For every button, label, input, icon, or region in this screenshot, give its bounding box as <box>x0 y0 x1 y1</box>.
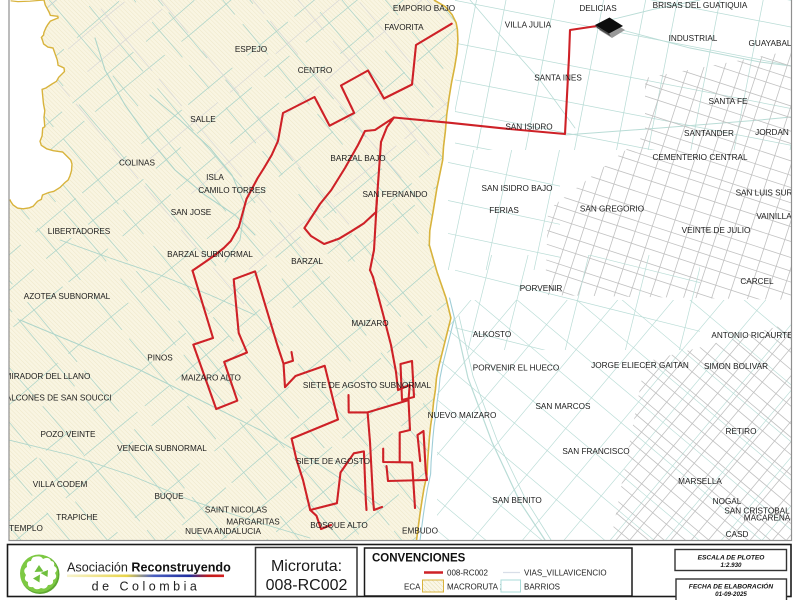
svg-text:01-09-2025: 01-09-2025 <box>715 591 747 598</box>
svg-text:INDUSTRIAL: INDUSTRIAL <box>669 34 718 43</box>
svg-text:RETIRO: RETIRO <box>726 427 757 436</box>
svg-text:PORVENIR: PORVENIR <box>520 284 563 293</box>
svg-text:ESCALA DE PLOTEO: ESCALA DE PLOTEO <box>698 555 766 562</box>
svg-text:008-RC002: 008-RC002 <box>447 569 488 578</box>
svg-text:CEMENTERIO CENTRAL: CEMENTERIO CENTRAL <box>652 153 748 162</box>
svg-text:MARSELLA: MARSELLA <box>678 477 722 486</box>
svg-text:AZOTEA SUBNORMAL: AZOTEA SUBNORMAL <box>24 292 111 301</box>
svg-text:PORVENIR EL HUECO: PORVENIR EL HUECO <box>473 364 559 373</box>
svg-text:CARCEL: CARCEL <box>740 277 774 286</box>
svg-text:BARZAL SUBNORMAL: BARZAL SUBNORMAL <box>167 250 253 259</box>
svg-text:VILLA JULIA: VILLA JULIA <box>505 21 552 30</box>
svg-text:ISLA: ISLA <box>206 173 224 182</box>
svg-text:MAIZARO: MAIZARO <box>351 319 388 328</box>
svg-text:Microruta:: Microruta: <box>271 558 342 575</box>
svg-text:BOSQUE ALTO: BOSQUE ALTO <box>310 521 367 530</box>
svg-text:MARGARITAS: MARGARITAS <box>226 518 280 527</box>
svg-text:BUQUE: BUQUE <box>154 492 184 501</box>
svg-text:TEMPLO: TEMPLO <box>9 524 43 533</box>
svg-text:BARZAL: BARZAL <box>291 257 323 266</box>
svg-text:FAVORITA: FAVORITA <box>384 23 424 32</box>
svg-text:SIMON BOLIVAR: SIMON BOLIVAR <box>704 362 768 371</box>
svg-text:FECHA DE ELABORACIÓN: FECHA DE ELABORACIÓN <box>689 582 774 591</box>
svg-text:LIBERTADORES: LIBERTADORES <box>48 227 111 236</box>
svg-text:BARRIOS: BARRIOS <box>524 583 560 592</box>
svg-text:JORDAN: JORDAN <box>755 128 789 137</box>
svg-text:SAN JOSE: SAN JOSE <box>171 208 212 217</box>
svg-text:BRISAS DEL GUATIQUIA: BRISAS DEL GUATIQUIA <box>653 1 748 10</box>
svg-text:NOGAL: NOGAL <box>713 497 742 506</box>
svg-text:VEINTE DE JULIO: VEINTE DE JULIO <box>682 226 751 235</box>
svg-text:SANTA FE: SANTA FE <box>709 97 749 106</box>
svg-text:MACARENA: MACARENA <box>744 514 791 523</box>
svg-text:VENECIA SUBNORMAL: VENECIA SUBNORMAL <box>117 444 207 453</box>
svg-text:CAMILO TORRES: CAMILO TORRES <box>198 186 266 195</box>
svg-text:EMBUDO: EMBUDO <box>402 527 438 536</box>
svg-text:ALKOSTO: ALKOSTO <box>473 330 512 339</box>
svg-text:NUEVO MAIZARO: NUEVO MAIZARO <box>428 411 497 420</box>
svg-text:SAN MARCOS: SAN MARCOS <box>535 402 591 411</box>
svg-text:BARZAL BAJO: BARZAL BAJO <box>330 154 385 163</box>
svg-text:JORGE ELIECER GAITAN: JORGE ELIECER GAITAN <box>591 361 689 370</box>
svg-text:MACRORUTA 2: MACRORUTA 2 <box>447 583 505 592</box>
svg-text:EMPORIO BAJO: EMPORIO BAJO <box>393 4 455 13</box>
svg-text:SAN FRANCISCO: SAN FRANCISCO <box>562 447 629 456</box>
svg-text:SAN ISIDRO BAJO: SAN ISIDRO BAJO <box>482 184 553 193</box>
svg-text:SAN GREGORIO: SAN GREGORIO <box>580 205 644 214</box>
svg-text:TRAPICHE: TRAPICHE <box>56 513 98 522</box>
svg-text:SAN LUIS SUR: SAN LUIS SUR <box>736 189 793 198</box>
svg-text:SANTA INES: SANTA INES <box>534 74 582 83</box>
svg-text:CONVENCIONES: CONVENCIONES <box>372 553 466 565</box>
svg-text:CENTRO: CENTRO <box>298 66 333 75</box>
svg-text:de Colombia: de Colombia <box>92 580 201 594</box>
svg-text:VAINILLA: VAINILLA <box>756 212 792 221</box>
svg-text:MIRADOR DEL LLANO: MIRADOR DEL LLANO <box>5 372 91 381</box>
svg-text:BALCONES DE SAN SOUCCI: BALCONES DE SAN SOUCCI <box>0 394 111 403</box>
svg-text:SAN BENITO: SAN BENITO <box>492 496 541 505</box>
svg-text:SALLE: SALLE <box>190 115 216 124</box>
svg-text:DELICIAS: DELICIAS <box>579 4 617 13</box>
svg-text:SAN ISIDRO: SAN ISIDRO <box>505 123 552 132</box>
svg-text:MAIZARO ALTO: MAIZARO ALTO <box>181 374 241 383</box>
svg-text:SAN FERNANDO: SAN FERNANDO <box>362 190 427 199</box>
svg-text:ANTONIO RICAURTE: ANTONIO RICAURTE <box>711 331 793 340</box>
svg-text:SIETE DE AGOSTO: SIETE DE AGOSTO <box>296 457 370 466</box>
svg-text:PINOS: PINOS <box>147 354 173 363</box>
svg-text:ESPEJO: ESPEJO <box>235 45 267 54</box>
svg-text:SANTANDER: SANTANDER <box>684 129 734 138</box>
svg-text:FERIAS: FERIAS <box>489 206 519 215</box>
svg-text:SAINT NICOLAS: SAINT NICOLAS <box>205 506 268 515</box>
svg-text:NUEVA ANDALUCIA: NUEVA ANDALUCIA <box>185 527 261 536</box>
svg-text:GUAYABAL: GUAYABAL <box>749 39 792 48</box>
svg-text:VIAS_VILLAVICENCIO: VIAS_VILLAVICENCIO <box>524 569 607 578</box>
svg-text:POZO VEINTE: POZO VEINTE <box>40 430 96 439</box>
svg-text:Asociación Reconstruyendo: Asociación Reconstruyendo <box>67 561 231 575</box>
svg-text:COLINAS: COLINAS <box>119 159 155 168</box>
svg-text:1:2.930: 1:2.930 <box>721 562 743 569</box>
svg-text:VILLA CODEM: VILLA CODEM <box>33 480 88 489</box>
svg-text:CASD: CASD <box>726 530 749 539</box>
svg-text:ECA: ECA <box>404 583 421 592</box>
svg-text:SIETE DE AGOSTO SUBNORMAL: SIETE DE AGOSTO SUBNORMAL <box>303 381 432 390</box>
svg-text:008-RC002: 008-RC002 <box>266 577 348 594</box>
